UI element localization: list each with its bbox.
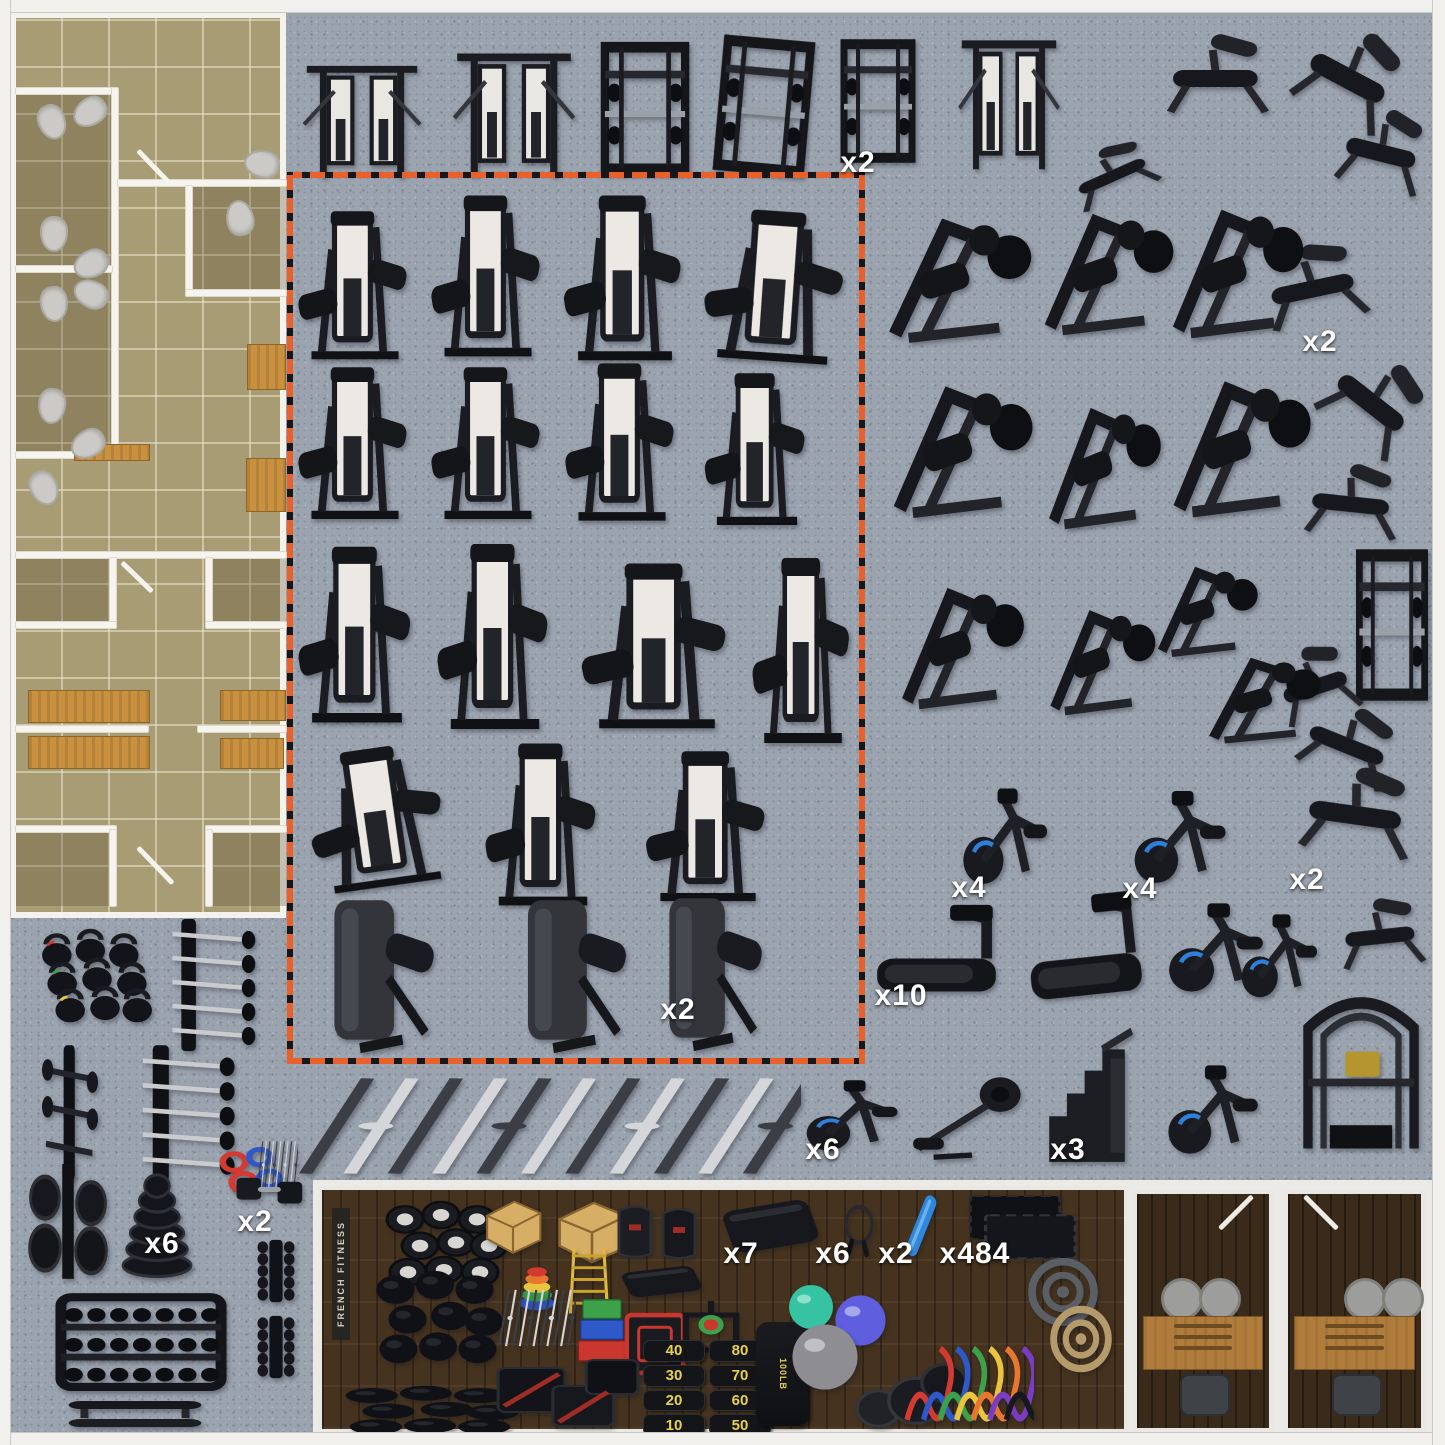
glute-kickback-machine bbox=[430, 540, 560, 740]
back-extension-machine bbox=[478, 740, 608, 915]
guest-chair bbox=[1199, 1278, 1241, 1320]
glute-drive-machine bbox=[1198, 638, 1330, 754]
wall-segment bbox=[206, 826, 286, 832]
functional-trainer bbox=[293, 50, 431, 188]
ab-crunch-machine bbox=[572, 560, 742, 738]
office-chair bbox=[1180, 1374, 1230, 1416]
specialty-barbell-set bbox=[285, 1072, 801, 1180]
pendulum-squat bbox=[890, 560, 1034, 724]
wall-segment bbox=[16, 826, 116, 832]
quantity-label: x4 bbox=[951, 871, 986, 905]
tricep-extension-machine bbox=[643, 888, 775, 1058]
office-room-1 bbox=[1133, 1190, 1273, 1432]
sandbag-set: 4030201080706050 bbox=[643, 1340, 771, 1436]
wall-segment bbox=[186, 290, 286, 296]
quantity-label: x3 bbox=[1050, 1133, 1085, 1167]
vertical-dumbbell-rack-2 bbox=[243, 1310, 309, 1384]
office-desk bbox=[1294, 1316, 1415, 1370]
wall-segment bbox=[206, 558, 212, 628]
quantity-label: x10 bbox=[874, 979, 927, 1013]
cable-jungle bbox=[950, 22, 1068, 182]
ff-multi-rig bbox=[1283, 970, 1439, 1164]
wall-segment bbox=[198, 726, 286, 732]
quantity-label: x2 bbox=[237, 1205, 272, 1239]
plate-tree bbox=[20, 1150, 116, 1290]
brand-text: FRENCH FITNESS bbox=[336, 1221, 346, 1327]
quantity-label: x2 bbox=[1289, 863, 1324, 897]
kettlebell-set bbox=[30, 920, 164, 1030]
floorplan-room bbox=[212, 558, 286, 622]
seated-row-machine bbox=[291, 208, 419, 368]
shoulder-press-machine bbox=[556, 192, 694, 370]
wall-segment bbox=[118, 180, 286, 186]
wall-segment bbox=[206, 830, 212, 906]
office-desk bbox=[1143, 1316, 1263, 1370]
seated-leg-press-machine bbox=[290, 735, 467, 906]
power-rack bbox=[586, 32, 704, 184]
quantity-label: x2 bbox=[840, 146, 875, 180]
quantity-label: x2 bbox=[878, 1237, 913, 1271]
gym-floor-plan: FRENCH FITNESS 4030201080706050100LBx2x2… bbox=[0, 0, 1445, 1445]
preacher-curl-machine bbox=[638, 748, 778, 910]
wall-segment bbox=[16, 726, 148, 732]
sandbag: 40 bbox=[643, 1340, 705, 1362]
farmer-carry-handles bbox=[496, 1286, 576, 1350]
lat-pulldown-machine bbox=[558, 360, 686, 530]
locker-bench bbox=[28, 690, 150, 723]
smith-machine bbox=[696, 23, 831, 189]
office-chair bbox=[1332, 1374, 1382, 1416]
three-tier-dumbbell-rack bbox=[50, 1270, 232, 1406]
frame-left bbox=[0, 0, 10, 1445]
guest-chair bbox=[1161, 1278, 1203, 1320]
wooden-plyo-box bbox=[477, 1194, 549, 1258]
locker-bench bbox=[220, 690, 286, 721]
locker-bench bbox=[220, 738, 284, 769]
multi-press-machine bbox=[291, 543, 423, 733]
highlighted-zone-border-bottom bbox=[287, 1058, 865, 1064]
hack-squat-machine bbox=[1160, 180, 1314, 354]
quantity-label: x2 bbox=[660, 993, 695, 1027]
quantity-label: x7 bbox=[723, 1237, 758, 1271]
highlighted-zone-border-top bbox=[287, 172, 865, 178]
guest-chair bbox=[1344, 1278, 1386, 1320]
office-door-swing bbox=[1218, 1194, 1254, 1230]
wall-segment bbox=[16, 88, 116, 94]
floorplan-room bbox=[212, 832, 286, 906]
standing-leg-curl-machine bbox=[424, 192, 552, 366]
frame-top bbox=[0, 0, 1445, 12]
wall-segment bbox=[112, 88, 118, 460]
frame-bottom bbox=[0, 1433, 1445, 1445]
locker-bench bbox=[28, 736, 150, 769]
office-room-2 bbox=[1284, 1190, 1425, 1432]
wall-segment bbox=[206, 622, 286, 628]
highlighted-zone-border-right bbox=[859, 172, 865, 1064]
ghd-machine bbox=[1152, 28, 1284, 128]
wall-segment bbox=[110, 830, 116, 906]
quantity-label: x2 bbox=[1302, 325, 1337, 359]
quantity-label: x6 bbox=[144, 1227, 179, 1261]
dip-chin-assist-machine bbox=[746, 554, 860, 754]
pec-fly-machine bbox=[291, 364, 419, 528]
olympic-flat-bench bbox=[1279, 751, 1437, 880]
adjustable-incline-bench bbox=[1317, 90, 1445, 216]
air-rower bbox=[908, 1060, 1036, 1168]
weighted-vests bbox=[607, 1198, 707, 1264]
soft-plyo-boxes bbox=[492, 1342, 644, 1442]
brand-label: FRENCH FITNESS bbox=[332, 1208, 350, 1340]
seated-calf-machine bbox=[1040, 586, 1164, 728]
iso-lateral-bench-press bbox=[1160, 350, 1322, 534]
office-door-swing bbox=[1303, 1194, 1339, 1230]
floorplan-room bbox=[16, 832, 110, 906]
air-bike bbox=[1152, 1050, 1278, 1178]
iso-lateral-leg-press bbox=[875, 190, 1043, 358]
hip-adduction-machine bbox=[424, 364, 552, 528]
converging-chest-press bbox=[306, 890, 448, 1060]
wall-segment bbox=[16, 622, 116, 628]
climbing-rope-coil bbox=[1043, 1298, 1119, 1380]
frame-right bbox=[1433, 0, 1445, 1445]
wall-segment bbox=[186, 186, 192, 296]
dual-stack-functional-trainer bbox=[443, 36, 585, 188]
iso-lateral-row-machine bbox=[1038, 380, 1170, 544]
sandbag: 20 bbox=[643, 1390, 705, 1412]
quantity-label: x6 bbox=[815, 1237, 850, 1271]
locker-bench bbox=[247, 344, 286, 390]
bumper-plate-stack bbox=[112, 1160, 202, 1284]
leg-extension-machine bbox=[691, 203, 864, 376]
floorplan-room bbox=[16, 558, 110, 622]
guest-chair bbox=[1382, 1278, 1424, 1320]
locker-bench bbox=[246, 458, 286, 512]
wall-segment bbox=[16, 552, 286, 558]
resistance-band-set bbox=[896, 1274, 1034, 1436]
wall-segment bbox=[110, 558, 116, 628]
stair-climber bbox=[1028, 1022, 1146, 1174]
quantity-label: x4 bbox=[1122, 872, 1157, 906]
sandbag: 30 bbox=[643, 1365, 705, 1387]
pec-dec-machine bbox=[500, 890, 640, 1060]
quantity-label: x484 bbox=[940, 1237, 1011, 1271]
highlighted-zone-border-left bbox=[287, 172, 293, 1064]
quantity-label: x6 bbox=[805, 1133, 840, 1167]
vertical-dumbbell-rack bbox=[243, 1234, 309, 1308]
seated-dip-machine bbox=[698, 370, 816, 534]
curved-treadmill bbox=[1008, 883, 1164, 1037]
belt-squat-machine bbox=[880, 356, 1044, 534]
